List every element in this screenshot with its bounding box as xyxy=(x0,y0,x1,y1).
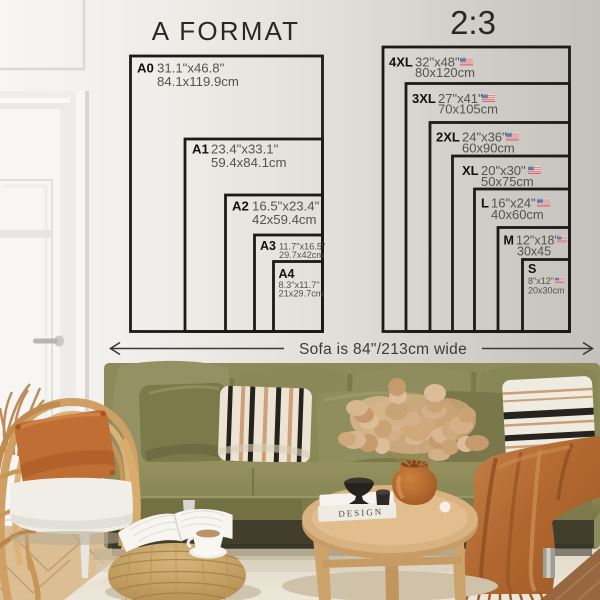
svg-text:29.7x42cm: 29.7x42cm xyxy=(279,250,324,260)
svg-text:A1: A1 xyxy=(192,142,209,157)
svg-text:M: M xyxy=(504,234,514,248)
svg-text:2XL: 2XL xyxy=(436,130,460,145)
svg-text:A0: A0 xyxy=(137,61,154,76)
svg-text:A3: A3 xyxy=(260,239,276,253)
svg-text:XL: XL xyxy=(462,163,479,178)
svg-text:80x120cm: 80x120cm xyxy=(415,65,475,80)
svg-text:8"x12": 8"x12" xyxy=(528,276,554,286)
svg-text:A4: A4 xyxy=(279,267,295,281)
svg-text:59.4x84.1cm: 59.4x84.1cm xyxy=(211,155,287,170)
svg-text:50x75cm: 50x75cm xyxy=(481,174,534,189)
svg-text:S: S xyxy=(528,262,536,276)
svg-text:3XL: 3XL xyxy=(412,91,436,106)
svg-text:4XL: 4XL xyxy=(389,55,413,70)
svg-text:30x45: 30x45 xyxy=(517,245,551,259)
svg-text:60x90cm: 60x90cm xyxy=(462,141,515,156)
svg-text:L: L xyxy=(481,196,489,211)
svg-text:2:3: 2:3 xyxy=(450,4,496,41)
svg-text:21x29.7cm: 21x29.7cm xyxy=(279,289,324,299)
svg-text:42x59.4cm: 42x59.4cm xyxy=(252,212,317,227)
svg-text:84.1x119.9cm: 84.1x119.9cm xyxy=(157,74,239,89)
svg-text:A2: A2 xyxy=(232,199,249,214)
svg-text:A FORMAT: A FORMAT xyxy=(152,16,301,46)
svg-text:Sofa is 84"/213cm wide: Sofa is 84"/213cm wide xyxy=(299,341,467,358)
svg-text:20x30cm: 20x30cm xyxy=(528,286,565,296)
svg-text:70x105cm: 70x105cm xyxy=(438,102,498,117)
svg-text:40x60cm: 40x60cm xyxy=(491,207,544,222)
